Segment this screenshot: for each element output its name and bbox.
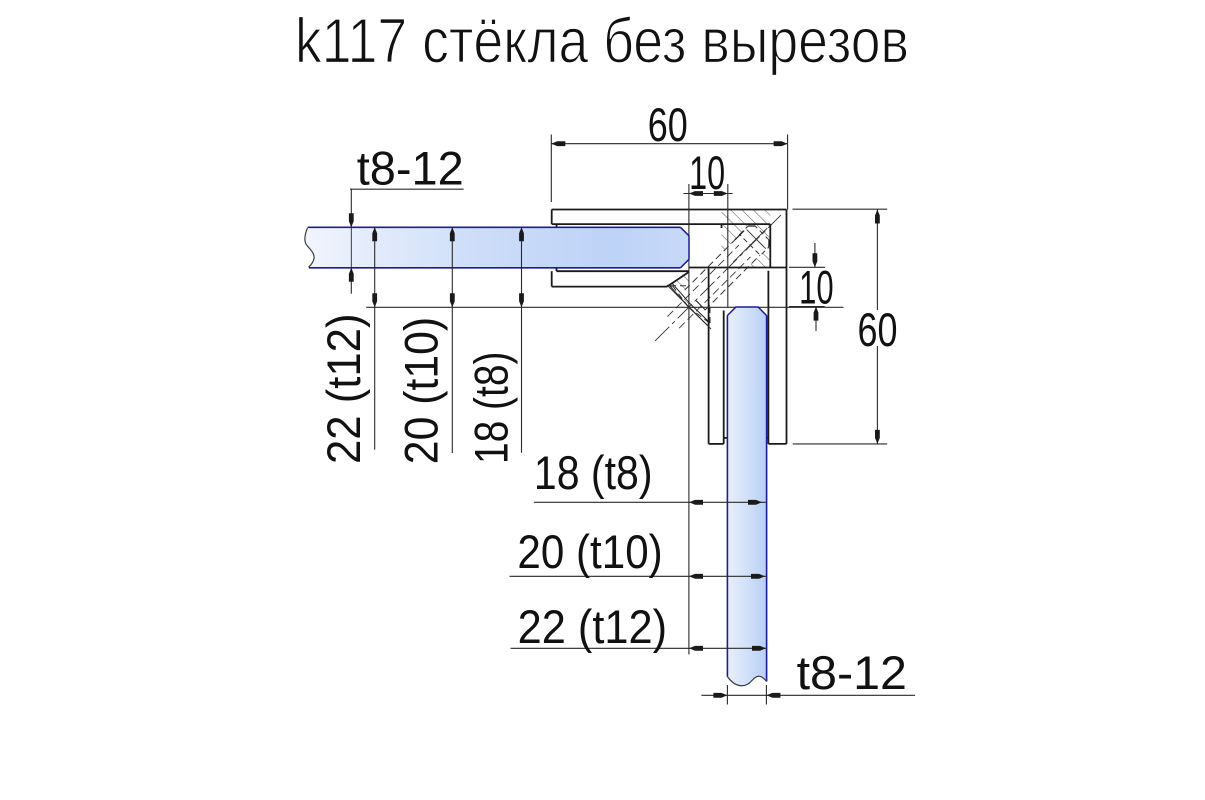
- svg-text:t8-12: t8-12: [357, 141, 464, 194]
- svg-text:20 (t10): 20 (t10): [394, 317, 447, 464]
- svg-text:22 (t12): 22 (t12): [518, 600, 668, 653]
- svg-text:18 (t8): 18 (t8): [465, 352, 518, 464]
- svg-text:20 (t10): 20 (t10): [517, 525, 662, 578]
- svg-text:k117 стёкла без вырезов: k117 стёкла без вырезов: [295, 6, 909, 76]
- svg-text:60: 60: [648, 98, 688, 151]
- svg-text:18 (t8): 18 (t8): [534, 446, 653, 499]
- svg-text:60: 60: [858, 303, 898, 356]
- svg-text:22 (t12): 22 (t12): [317, 314, 370, 465]
- svg-text:t8-12: t8-12: [797, 646, 907, 699]
- svg-text:10: 10: [689, 146, 725, 199]
- svg-text:10: 10: [799, 261, 834, 314]
